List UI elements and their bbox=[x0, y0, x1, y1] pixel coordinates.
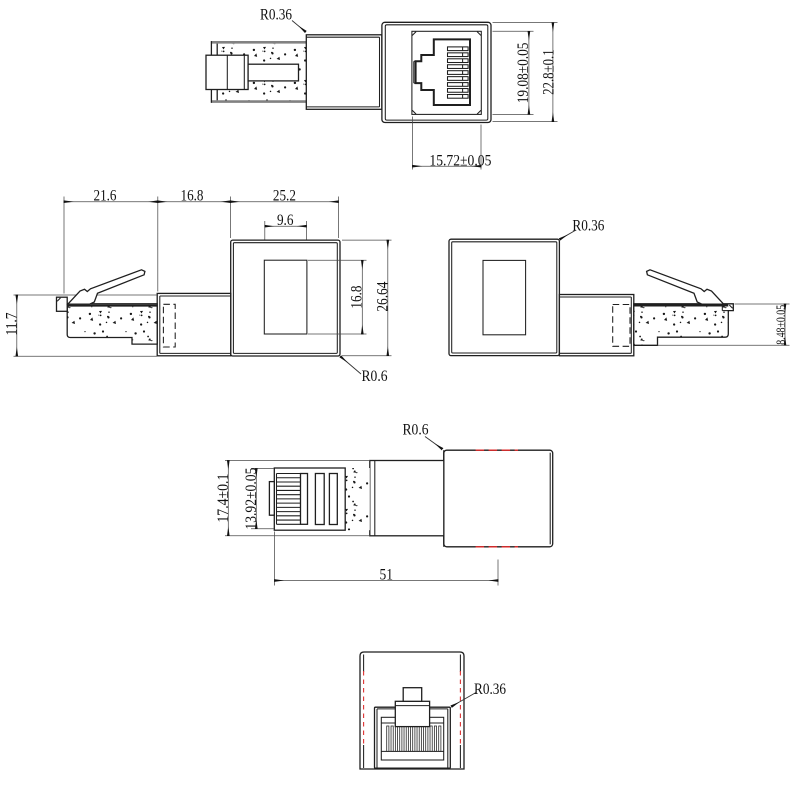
svg-text:25.2: 25.2 bbox=[273, 187, 296, 204]
svg-text:22.8±0.1: 22.8±0.1 bbox=[540, 49, 557, 95]
svg-text:15.72±0.05: 15.72±0.05 bbox=[429, 152, 491, 169]
svg-text:8.48±0.05: 8.48±0.05 bbox=[773, 305, 788, 345]
svg-text:9.6: 9.6 bbox=[277, 212, 294, 229]
svg-text:11.7: 11.7 bbox=[3, 313, 20, 336]
svg-text:R0.6: R0.6 bbox=[362, 368, 388, 385]
svg-text:16.8: 16.8 bbox=[181, 187, 204, 204]
svg-text:13.92±0.05: 13.92±0.05 bbox=[243, 468, 260, 530]
svg-text:R0.36: R0.36 bbox=[572, 218, 604, 235]
svg-text:19.08±0.05: 19.08±0.05 bbox=[515, 43, 532, 104]
svg-text:17.4±0.1: 17.4±0.1 bbox=[215, 474, 232, 523]
svg-text:16.8: 16.8 bbox=[349, 286, 366, 309]
svg-text:R0.36: R0.36 bbox=[474, 681, 506, 698]
svg-text:R0.36: R0.36 bbox=[260, 7, 292, 24]
svg-text:21.6: 21.6 bbox=[94, 187, 117, 204]
svg-text:R0.6: R0.6 bbox=[403, 422, 429, 439]
svg-text:51: 51 bbox=[380, 566, 394, 583]
svg-text:26.64: 26.64 bbox=[375, 282, 392, 312]
